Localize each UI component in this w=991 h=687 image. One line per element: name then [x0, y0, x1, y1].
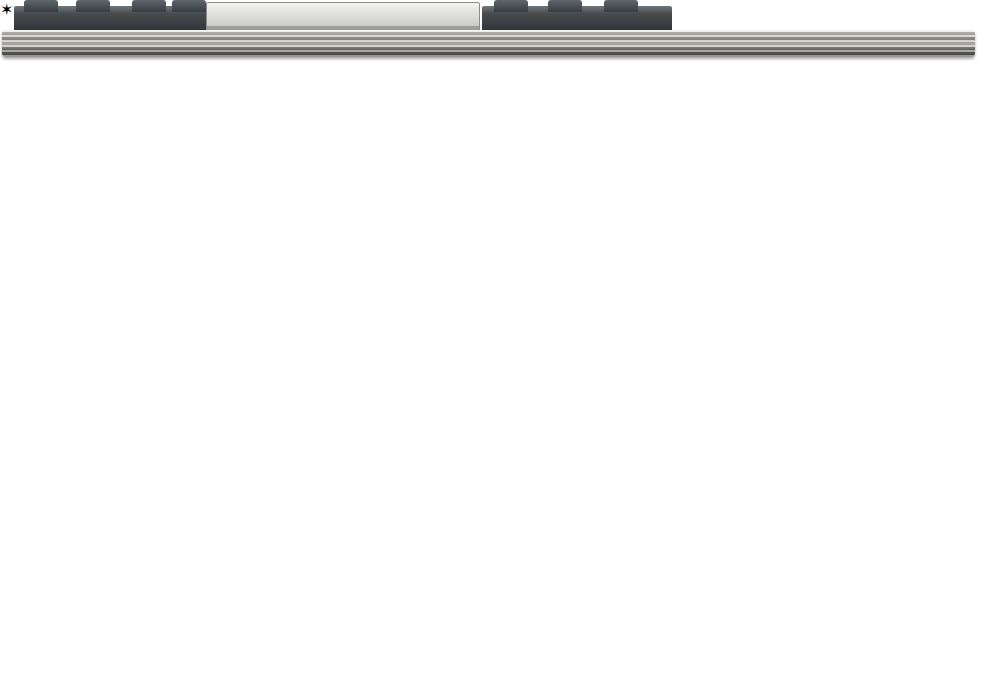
star-icon: ✶: [0, 1, 13, 18]
burner-grate-right: [482, 6, 672, 32]
burner-control-2-knob[interactable]: [0, 93, 30, 127]
burner-control-5-knob[interactable]: [0, 195, 30, 229]
burner-grate-left: [14, 6, 208, 32]
grate-finger: [76, 0, 110, 12]
oven-control-right-knob[interactable]: [0, 229, 36, 269]
center-oven-door[interactable]: [0, 533, 339, 687]
burner-control-4-knob[interactable]: [0, 161, 30, 195]
grate-finger: [172, 0, 206, 12]
grate-finger: [494, 0, 528, 12]
burner-control-1-knob[interactable]: [0, 59, 30, 93]
front-towel-rail: [2, 30, 975, 57]
left-oven-door[interactable]: [0, 269, 342, 533]
product-photo: ✶: [0, 0, 991, 687]
grate-finger: [24, 0, 58, 12]
grate-finger: [548, 0, 582, 12]
grate-finger: [132, 0, 166, 12]
grate-finger: [604, 0, 638, 12]
burner-control-3-knob[interactable]: [0, 127, 30, 161]
